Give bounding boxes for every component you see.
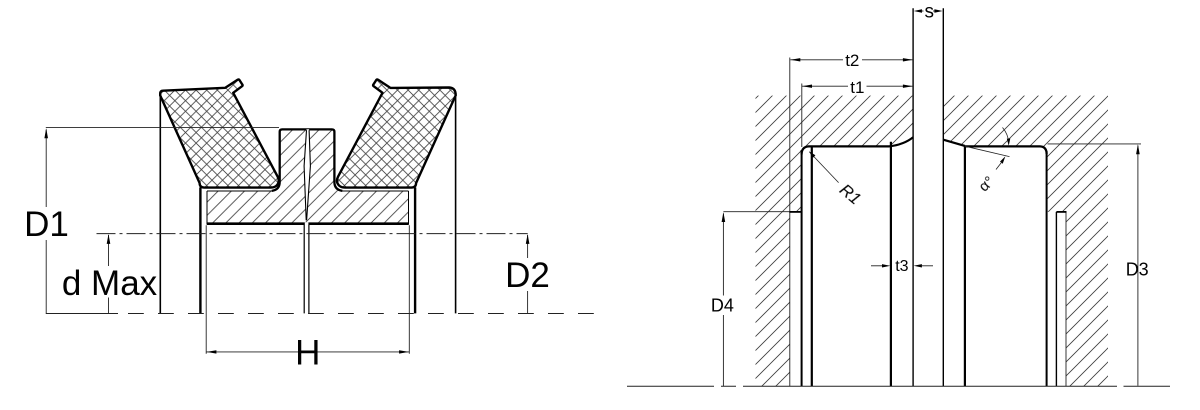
- svg-text:s: s: [924, 2, 934, 23]
- svg-text:D1: D1: [24, 205, 69, 244]
- svg-text:t1: t1: [850, 78, 864, 97]
- svg-text:D4: D4: [711, 295, 734, 315]
- svg-text:D3: D3: [1126, 259, 1149, 279]
- svg-text:t2: t2: [845, 51, 859, 70]
- svg-text:H: H: [295, 334, 320, 373]
- svg-text:D2: D2: [505, 256, 550, 295]
- svg-text:d Max: d Max: [62, 264, 158, 303]
- svg-text:t3: t3: [895, 258, 908, 275]
